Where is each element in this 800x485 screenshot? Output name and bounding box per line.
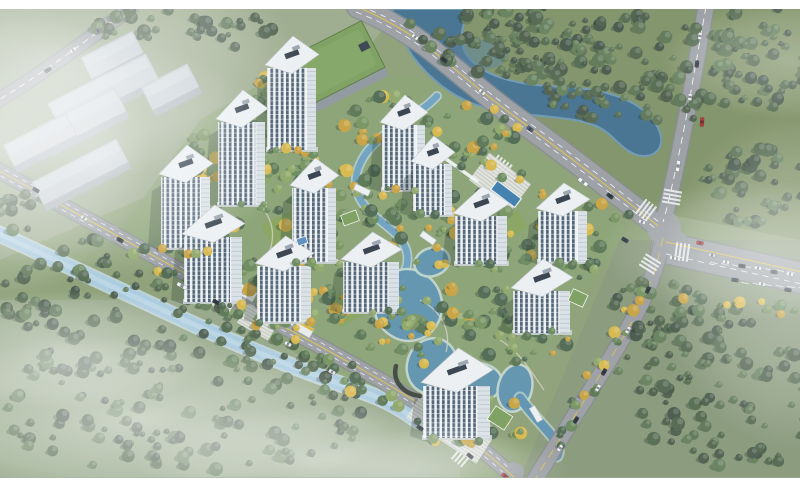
white-border-bottom bbox=[0, 478, 800, 485]
white-border-top bbox=[0, 0, 800, 9]
render-content bbox=[0, 0, 800, 485]
color-grade bbox=[0, 9, 800, 478]
rendered-aerial-view bbox=[0, 0, 800, 485]
aerial-render-screenshot bbox=[0, 0, 800, 485]
atmospheric-haze bbox=[0, 0, 800, 485]
